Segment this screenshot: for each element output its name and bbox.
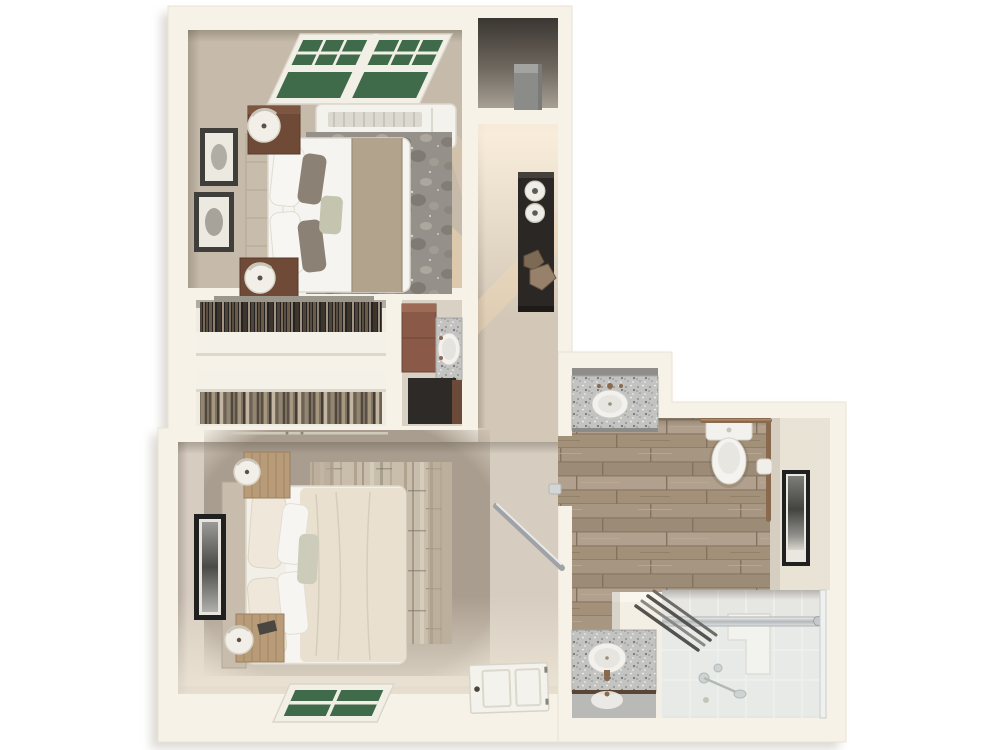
toilet-paper-holder: [757, 459, 772, 474]
table-lamp-1: [248, 109, 280, 142]
floor-plan-canvas: [0, 0, 1000, 750]
vase-1: [525, 181, 545, 201]
vanity-nook: [402, 304, 462, 424]
console-table: [518, 172, 556, 312]
closet1-hanging-clothes: [200, 302, 382, 332]
floor-plan-3d-render: [0, 0, 1000, 750]
dark-cabinet: [408, 378, 456, 424]
hallway: [518, 172, 556, 312]
faucet-top: [607, 383, 613, 389]
vanity-bottom: [572, 630, 656, 718]
bathroom-wall-art: [782, 470, 810, 566]
closet1-shelf: [196, 332, 386, 356]
table-lamp-4: [225, 626, 253, 654]
table-lamp-3: [234, 459, 260, 485]
interior-door: [469, 663, 549, 714]
wall-art-2: [194, 192, 234, 252]
nightstand-1: [248, 106, 300, 154]
walk-in-closet-1: [196, 296, 386, 356]
vase-2: [526, 204, 545, 223]
wall-art-1: [200, 128, 238, 186]
bed-runner: [352, 138, 402, 292]
wall-art-3: [194, 514, 226, 620]
closet2-shelf: [196, 370, 386, 392]
vanity-top: [572, 368, 658, 432]
bedroom2-window: [273, 684, 394, 722]
double-window: [267, 34, 452, 104]
shower-glass-return: [820, 590, 826, 718]
storage-closet: [514, 64, 542, 110]
closet-door-track: [228, 432, 388, 435]
nightstand-2: [240, 258, 298, 298]
closet2-hanging-clothes: [200, 392, 382, 424]
bathroom-doorway-threshold: [558, 436, 574, 506]
table-lamp-2: [245, 263, 275, 293]
walk-in-closet-2: [196, 370, 386, 424]
mirror-top: [572, 368, 658, 376]
